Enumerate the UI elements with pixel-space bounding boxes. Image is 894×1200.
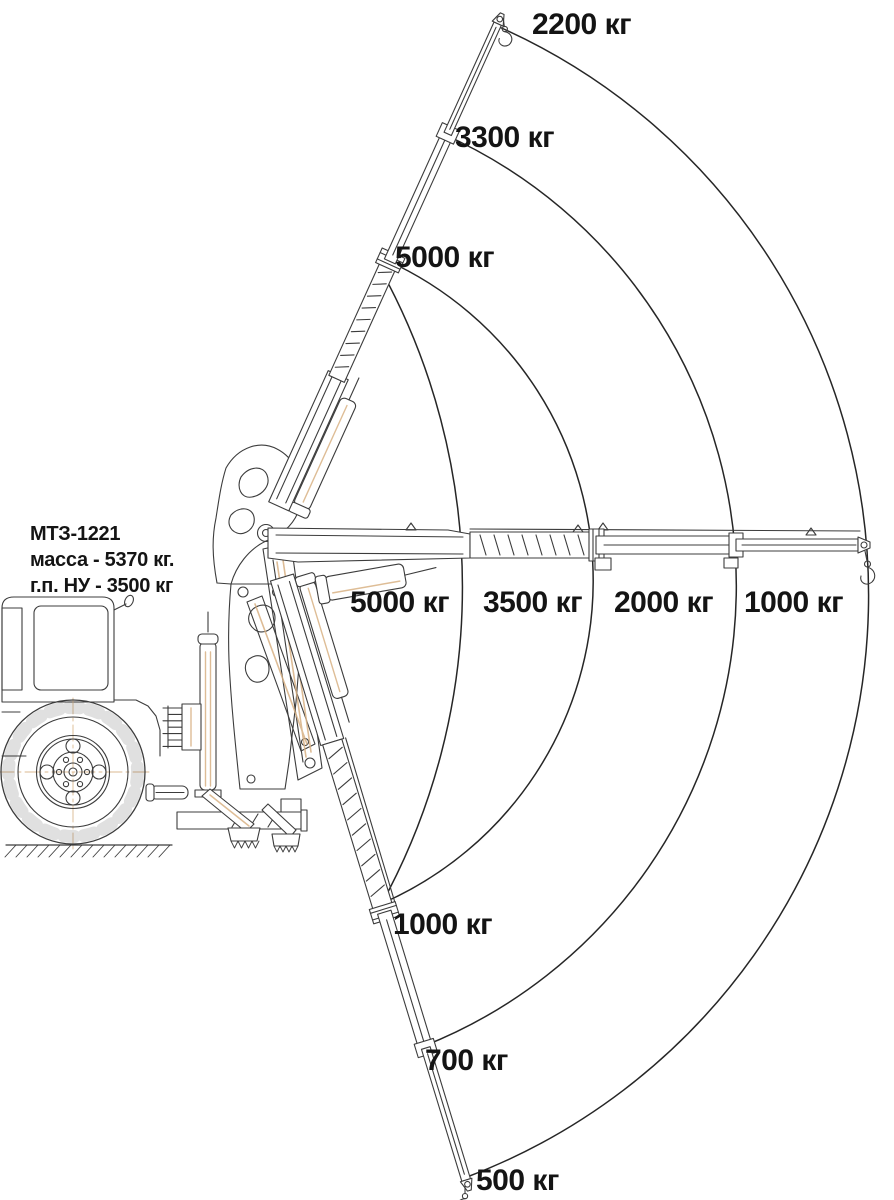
valve-block	[163, 704, 201, 750]
envelope-arc-second	[383, 260, 593, 903]
tractor	[0, 594, 172, 857]
capacity-label-lowered-2: 700 кг	[425, 1044, 508, 1077]
capacity-label-horizontal-4: 1000 кг	[744, 586, 843, 619]
capacity-label-horizontal-3: 2000 кг	[614, 586, 713, 619]
machine-mass: масса - 5370 кг.	[30, 549, 174, 571]
machine-info-block: МТЗ-1221 масса - 5370 кг. г.п. НУ - 3500…	[30, 523, 174, 597]
boom-lowered	[264, 568, 506, 1200]
ground	[5, 845, 172, 857]
capacity-label-horizontal-2: 3500 кг	[483, 586, 582, 619]
machine-model: МТЗ-1221	[30, 523, 120, 545]
capacity-label-raised-3: 5000 кг	[395, 241, 494, 274]
tractor-cab	[2, 597, 114, 702]
capacity-label-raised-2: 3300 кг	[455, 121, 554, 154]
capacity-label-lowered-3: 500 кг	[476, 1164, 559, 1197]
boom-horizontal-base	[268, 528, 470, 562]
crane-load-diagram: 2200 кг 3300 кг 5000 кг 5000 кг 3500 кг …	[0, 0, 894, 1200]
cab-window	[34, 606, 108, 690]
rear-wheel	[0, 698, 152, 850]
cab-window-left	[2, 608, 22, 690]
outrigger-foot-rear	[272, 834, 300, 846]
capacity-label-lowered-1: 1000 кг	[393, 908, 492, 941]
capacity-label-horizontal-1: 5000 кг	[350, 586, 449, 619]
outrigger-foot	[228, 828, 260, 841]
boom-horizontal-ladder-section	[470, 532, 596, 558]
outrigger	[177, 789, 307, 852]
mirror	[114, 604, 126, 610]
boom-lowered-ladder-section	[323, 739, 394, 915]
machine-capacity: г.п. НУ - 3500 кг	[30, 575, 173, 597]
boom-horizontal-head	[858, 537, 870, 553]
vertical-cylinder	[200, 642, 216, 790]
diagram-page: 2200 кг 3300 кг 5000 кг 5000 кг 3500 кг …	[0, 0, 894, 1200]
capacity-label-raised-1: 2200 кг	[532, 8, 631, 41]
